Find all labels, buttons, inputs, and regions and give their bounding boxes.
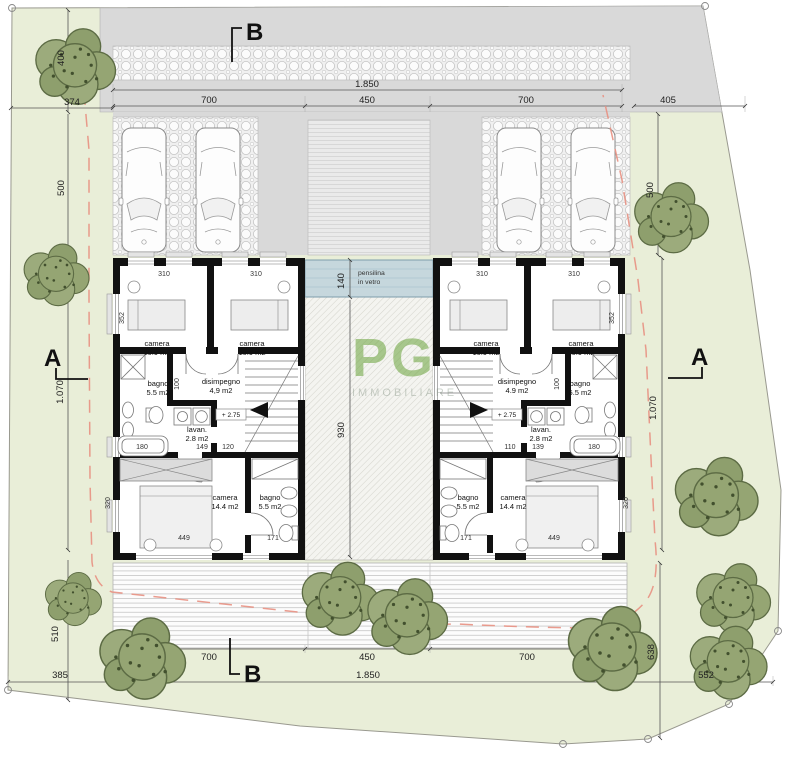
room-bagno1-left: bagno — [148, 379, 169, 388]
dim-700-bottom-right: 700 — [519, 652, 535, 663]
room-camera3-left-area: 14.4 m2 — [211, 502, 238, 511]
dim-140-canopy: 140 — [336, 273, 347, 289]
dim-1070-left: 1.070 — [55, 380, 66, 404]
level-left: + 2.75 — [222, 412, 241, 419]
room-lavanderia-left-area: 2.8 m2 — [186, 434, 209, 443]
room-disimpegno-left: disimpegno — [202, 377, 240, 386]
unit-right-plan — [433, 252, 631, 560]
dim-700-bottom-left: 700 — [201, 652, 217, 663]
dim-171-right: 171 — [460, 535, 472, 542]
watermark-logo: PG — [352, 328, 436, 388]
dim-400: 400 — [56, 50, 67, 66]
dim-120-left: 120 — [222, 444, 234, 451]
dim-310-l2: 310 — [250, 271, 262, 278]
dim-700-top-right: 700 — [518, 95, 534, 106]
room-bagno1-right-area: 5.5 m2 — [569, 388, 592, 397]
room-lavanderia-left: lavan. — [187, 425, 207, 434]
room-camera2-right: camera — [568, 339, 594, 348]
room-disimpegno-left-area: 4,9 m2 — [210, 386, 233, 395]
room-bagno2-left-area: 5.5 m2 — [259, 502, 282, 511]
dim-1070-right: 1.070 — [648, 396, 659, 420]
room-bagno2-right-area: 5.5 m2 — [457, 502, 480, 511]
car-1 — [119, 128, 169, 252]
room-camera2-left-area: 10.9 m2 — [238, 348, 265, 357]
dim-139-right: 139 — [532, 444, 544, 451]
dim-374: 374 — [64, 97, 80, 108]
car-2 — [193, 128, 243, 252]
section-a-right-label: A — [691, 344, 708, 371]
dim-352-right: 352 — [609, 312, 616, 324]
unit-left-plan — [107, 252, 305, 560]
room-camera3-left: camera — [212, 493, 238, 502]
dim-552: 552 — [698, 670, 714, 681]
room-bagno2-left: bagno — [260, 493, 281, 502]
level-right: + 2.75 — [498, 412, 517, 419]
canopy-line1: pensilina — [358, 270, 385, 277]
room-camera1-left: camera — [144, 339, 170, 348]
dim-449-right: 449 — [548, 535, 560, 542]
room-camera1-right: camera — [473, 339, 499, 348]
room-lavanderia-right-area: 2.8 m2 — [530, 434, 553, 443]
room-camera1-right-area: 10.9 m2 — [472, 348, 499, 357]
dim-450-top: 450 — [359, 95, 375, 106]
road — [100, 6, 722, 112]
dim-1850-bottom: 1.850 — [356, 670, 380, 681]
dim-310-r1: 310 — [476, 271, 488, 278]
dim-352-left: 352 — [119, 312, 126, 324]
driveway-ramp — [308, 120, 430, 255]
dim-310-r2: 310 — [568, 271, 580, 278]
dim-385: 385 — [52, 670, 68, 681]
dim-405-top: 405 — [660, 95, 676, 106]
dim-320-right: 320 — [623, 497, 630, 509]
room-bagno1-left-area: 5.5 m2 — [147, 388, 170, 397]
dim-180-right: 180 — [588, 444, 600, 451]
dim-930-court: 930 — [336, 422, 347, 438]
forecourt — [113, 112, 630, 255]
dim-450-bottom: 450 — [359, 652, 375, 663]
dim-500-right: 500 — [645, 182, 656, 198]
room-camera1-left-area: 10.9 m2 — [143, 348, 170, 357]
section-b-bottom-label: B — [244, 661, 261, 688]
site-plan-drawing: 1.850 700 450 700 405 374 400 500 500 1.… — [0, 0, 800, 758]
dim-500-left: 500 — [56, 180, 67, 196]
site-plan-canvas: 1.850 700 450 700 405 374 400 500 500 1.… — [0, 0, 800, 758]
room-lavanderia-right: lavan. — [531, 425, 551, 434]
dim-171-left: 171 — [267, 535, 279, 542]
car-3 — [494, 128, 544, 252]
dim-100-left: 100 — [174, 378, 181, 390]
dim-320-left: 320 — [105, 497, 112, 509]
car-4 — [568, 128, 618, 252]
section-a-left-label: A — [44, 345, 61, 372]
dim-510: 510 — [50, 626, 61, 642]
dim-638: 638 — [646, 644, 657, 660]
watermark-subtitle: IMMOBILIARE — [352, 387, 457, 399]
section-b-top-label: B — [246, 19, 263, 46]
room-camera3-right: camera — [500, 493, 526, 502]
dim-100-right: 100 — [554, 378, 561, 390]
dim-449-left: 449 — [178, 535, 190, 542]
sidewalk — [113, 46, 630, 80]
room-bagno2-right: bagno — [458, 493, 479, 502]
dim-1850-top: 1.850 — [355, 79, 379, 90]
dim-180-left: 180 — [136, 444, 148, 451]
dim-110-right: 110 — [504, 444, 515, 451]
courtyard — [305, 260, 433, 560]
dim-149-left: 149 — [196, 444, 208, 451]
room-bagno1-right: bagno — [570, 379, 591, 388]
canopy-line2: in vetro — [358, 279, 381, 286]
room-disimpegno-right-area: 4.9 m2 — [506, 386, 529, 395]
room-camera2-right-area: 10.9 m2 — [567, 348, 594, 357]
room-disimpegno-right: disimpegno — [498, 377, 536, 386]
room-camera2-left: camera — [239, 339, 265, 348]
dim-310-l1: 310 — [158, 271, 170, 278]
dim-700-top-left: 700 — [201, 95, 217, 106]
room-camera3-right-area: 14.4 m2 — [499, 502, 526, 511]
